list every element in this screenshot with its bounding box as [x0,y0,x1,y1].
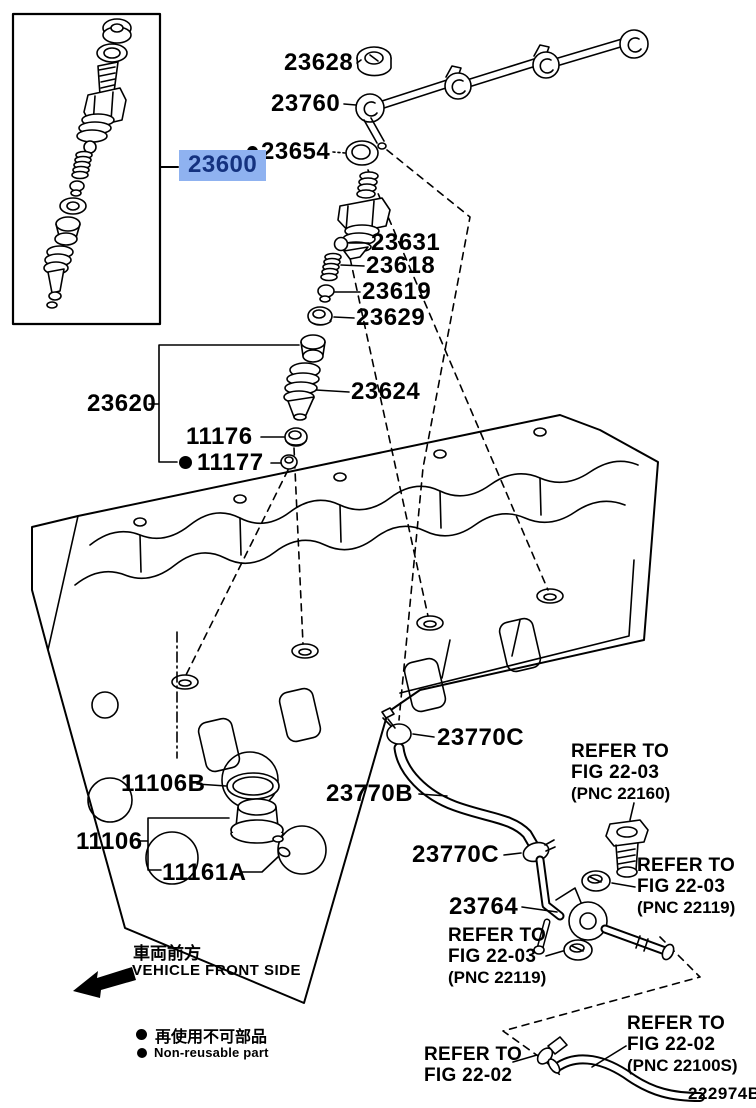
part-label-23624[interactable]: 23624 [351,379,420,404]
part-label-11177[interactable]: 11177 [197,450,264,475]
refer-pnc: (PNC 22119) [448,967,546,988]
part-label-23760[interactable]: 23760 [271,91,340,116]
vehicle-front-label-en: VEHICLE FRONT SIDE [132,962,301,979]
injector-kit-parts [44,19,131,308]
part-label-23770C-top[interactable]: 23770C [437,725,524,750]
refer-line: REFER TO [448,925,546,946]
refer-line: REFER TO [424,1044,522,1065]
refer-note-fig22-03-pnc22119-bottom[interactable]: REFER TO FIG 22-03 (PNC 22119) [448,925,546,988]
part-label-23764[interactable]: 23764 [449,894,518,919]
refer-pnc: (PNC 22100S) [627,1055,738,1076]
seal-11177 [281,455,297,469]
injector-kit-box [13,14,160,324]
non-reusable-dot [136,1029,147,1040]
clamp-23770C-top [382,708,411,744]
refer-line: FIG 22-03 [448,946,546,967]
nut-23628 [357,47,391,76]
diagram-line-art [0,0,756,1108]
part-label-23770B[interactable]: 23770B [326,781,413,806]
part-label-23654[interactable]: 23654 [261,139,330,164]
fuel-pipe-23760 [356,30,648,149]
grommet-pnc22119-right [582,871,610,891]
part-label-23619[interactable]: 23619 [362,279,431,304]
refer-note-fig22-02-left[interactable]: REFER TO FIG 22-02 [424,1044,522,1086]
refer-note-fig22-03-pnc22160[interactable]: REFER TO FIG 22-03 (PNC 22160) [571,741,670,804]
refer-line: REFER TO [571,741,670,762]
pin-23619 [318,285,334,302]
refer-line: REFER TO [637,855,735,876]
refer-pnc: (PNC 22119) [637,897,735,918]
refer-note-fig22-03-pnc22119-right[interactable]: REFER TO FIG 22-03 (PNC 22119) [637,855,735,918]
non-reusable-dot [137,1048,147,1058]
non-reusable-dot [179,456,192,469]
refer-line: FIG 22-02 [627,1034,738,1055]
legend-non-reusable-jp: 再使用不可部品 [155,1023,267,1047]
refer-line: REFER TO [627,1013,738,1034]
injector-bores [172,589,563,689]
spacer-23620 [301,335,325,362]
refer-note-fig22-02-pnc22100s[interactable]: REFER TO FIG 22-02 (PNC 22100S) [627,1013,738,1076]
part-label-23620[interactable]: 23620 [87,391,156,416]
diagram-code: 222974B [688,1084,756,1104]
part-label-23628[interactable]: 23628 [284,50,353,75]
parts-diagram: 23628 23760 23654 23600 23631 23618 2361… [0,0,756,1108]
oring-11106B [227,773,279,799]
refer-line: FIG 22-02 [424,1065,522,1086]
part-label-23629[interactable]: 23629 [356,305,425,330]
part-label-11106B[interactable]: 11106B [121,771,205,796]
hose-23770B [399,748,534,846]
part-label-23600-highlighted[interactable]: 23600 [179,150,266,181]
part-label-11106[interactable]: 11106 [76,829,143,854]
part-label-11161A[interactable]: 11161A [162,860,246,885]
refer-line: FIG 22-03 [637,876,735,897]
spring-23618 [321,254,341,281]
seat-23629 [308,307,332,325]
vehicle-front-arrow [73,967,136,998]
part-label-11176[interactable]: 11176 [186,424,253,449]
vehicle-front-label-jp: 車両前方 [133,939,201,964]
refer-pnc: (PNC 22160) [571,783,670,804]
refer-line: FIG 22-03 [571,762,670,783]
cap-11106 [231,799,283,843]
ball-23631 [335,238,348,251]
washer-23654 [346,141,378,165]
gasket-11176 [285,428,307,446]
part-label-23770C-mid[interactable]: 23770C [412,842,499,867]
part-label-23618[interactable]: 23618 [366,253,435,278]
grommet-pnc22119-bottom [564,940,592,960]
nozzle-23624 [284,363,320,420]
legend-non-reusable-en: Non-reusable part [154,1045,269,1060]
